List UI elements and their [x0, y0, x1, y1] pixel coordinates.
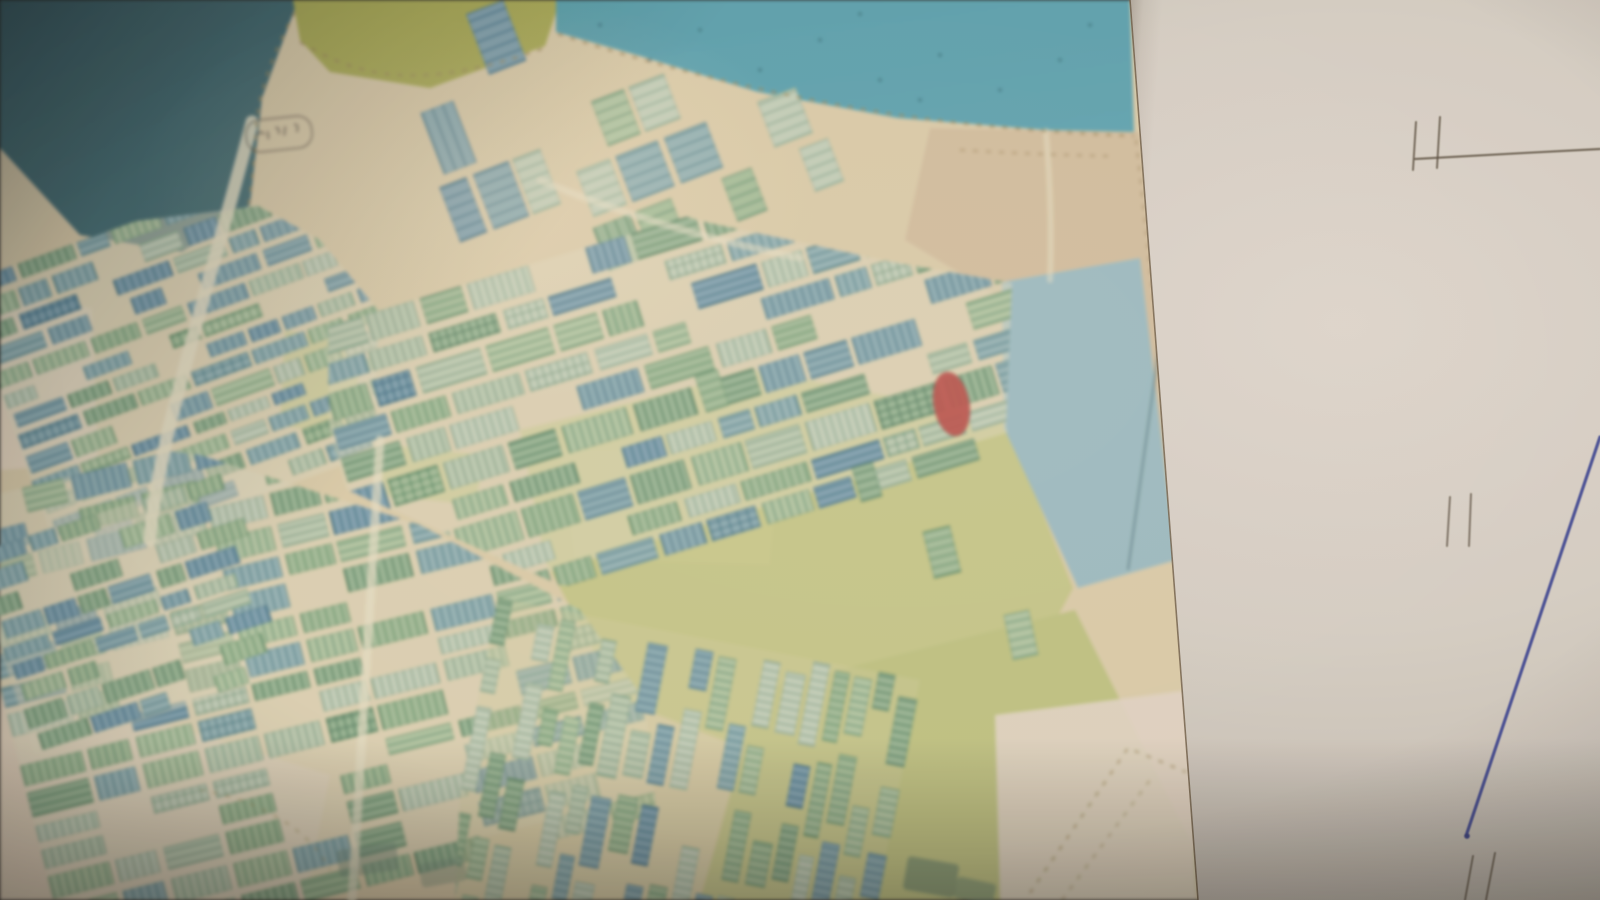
- pencil-hatch-mid-1: [1447, 497, 1450, 546]
- photographed-map-scene: [0, 0, 1600, 900]
- pencil-hatch-mid-2: [1469, 494, 1471, 546]
- pencil-dim-tick-2: [1437, 117, 1440, 168]
- blue-pen-line-end-dot: [1464, 833, 1470, 839]
- pencil-hatch-bottom-1: [1465, 856, 1473, 900]
- blue-pen-line: [1466, 437, 1600, 836]
- pencil-dim-tick-1: [1413, 122, 1416, 170]
- pencil-dim-line-horizontal: [1415, 149, 1600, 159]
- pencil-and-pen-marks: [0, 0, 1600, 900]
- marks-svg: [0, 0, 1600, 900]
- pencil-hatch-bottom-2: [1486, 853, 1495, 900]
